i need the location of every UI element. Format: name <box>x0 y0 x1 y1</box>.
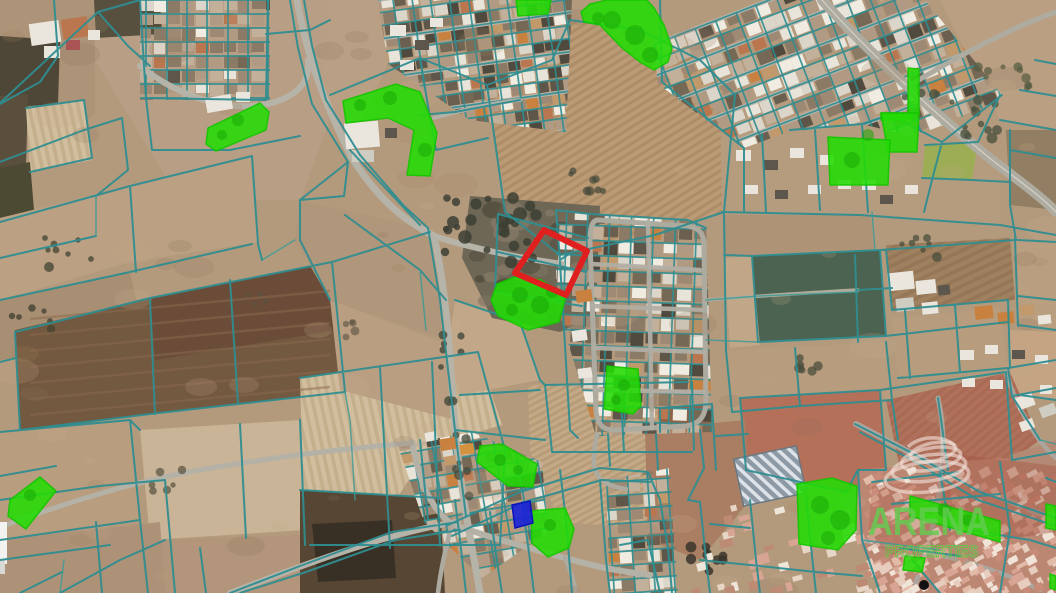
svg-text:PROPERTIES: PROPERTIES <box>885 543 978 561</box>
svg-text:ARENA: ARENA <box>868 500 990 544</box>
